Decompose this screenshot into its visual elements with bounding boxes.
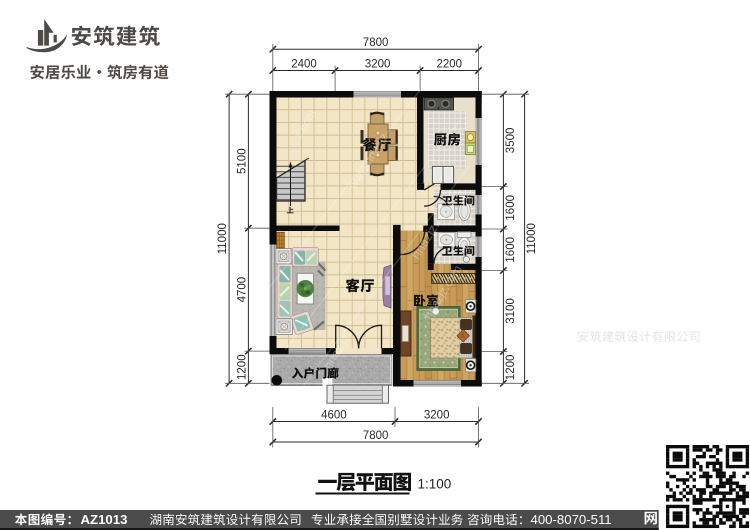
svg-text:1600: 1600 — [505, 195, 517, 221]
svg-text:1:100: 1:100 — [418, 477, 452, 492]
svg-text:5100: 5100 — [236, 148, 248, 174]
svg-text:2200: 2200 — [437, 59, 463, 71]
svg-text:11000: 11000 — [217, 223, 229, 254]
svg-text:3200: 3200 — [424, 409, 450, 421]
svg-text:2400: 2400 — [291, 59, 317, 71]
svg-text:7800: 7800 — [363, 430, 389, 442]
svg-text:1600: 1600 — [505, 237, 517, 263]
svg-text:1200: 1200 — [505, 355, 517, 381]
svg-text:3500: 3500 — [505, 128, 517, 154]
svg-text:1200: 1200 — [236, 354, 248, 380]
svg-text:AZ1013: AZ1013 — [81, 512, 128, 527]
svg-text:11000: 11000 — [526, 223, 538, 254]
svg-text:4700: 4700 — [236, 277, 248, 303]
svg-text:4600: 4600 — [321, 409, 347, 421]
svg-text:3100: 3100 — [505, 298, 517, 324]
svg-text:7800: 7800 — [363, 37, 389, 49]
svg-text:400-8070-511: 400-8070-511 — [531, 512, 612, 527]
svg-text:3200: 3200 — [365, 59, 391, 71]
